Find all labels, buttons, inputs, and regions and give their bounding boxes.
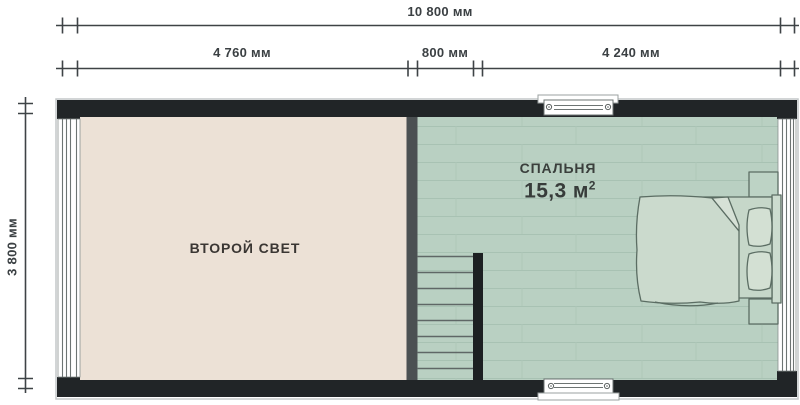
room-bedroom-area: 15,3 м2 <box>524 179 596 204</box>
dimension-line-height <box>18 97 33 393</box>
dimension-line-segments <box>56 61 799 77</box>
window-left-icon <box>58 119 80 377</box>
room-bedroom-area-value: 15,3 м <box>524 180 589 203</box>
dimension-line-total <box>56 18 799 34</box>
partition-wall <box>407 113 418 382</box>
dim-segment-center-label: 800 мм <box>422 45 468 60</box>
stair-railing <box>473 253 483 382</box>
wall-corner-top-left <box>57 100 80 119</box>
bed-headboard <box>772 195 781 303</box>
room-bedroom-label: СПАЛЬНЯ <box>520 160 597 176</box>
dim-total-width-label: 10 800 мм <box>407 4 472 19</box>
floorplan-drawing <box>0 0 800 405</box>
room-second-light-label: ВТОРОЙ СВЕТ <box>190 240 301 256</box>
floor-plan: 10 800 мм 4 760 мм 800 мм 4 240 мм 3 800… <box>0 0 800 405</box>
wall-corner-bottom-right <box>777 371 797 397</box>
wall-top <box>57 100 797 117</box>
wall-bottom <box>57 380 797 397</box>
dim-segment-right-label: 4 240 мм <box>602 45 660 60</box>
window-top-icon <box>538 95 618 115</box>
wall-corner-top-right <box>777 100 797 119</box>
pillow-icon <box>747 252 772 291</box>
wall-corner-bottom-left <box>57 377 80 397</box>
pillow-icon <box>747 208 772 247</box>
nightstand-icon <box>749 172 778 197</box>
window-bottom-icon <box>538 379 619 400</box>
room-bedroom-area-superscript: 2 <box>589 179 596 193</box>
dim-height-label: 3 800 мм <box>5 218 20 276</box>
dim-segment-left-label: 4 760 мм <box>213 45 271 60</box>
